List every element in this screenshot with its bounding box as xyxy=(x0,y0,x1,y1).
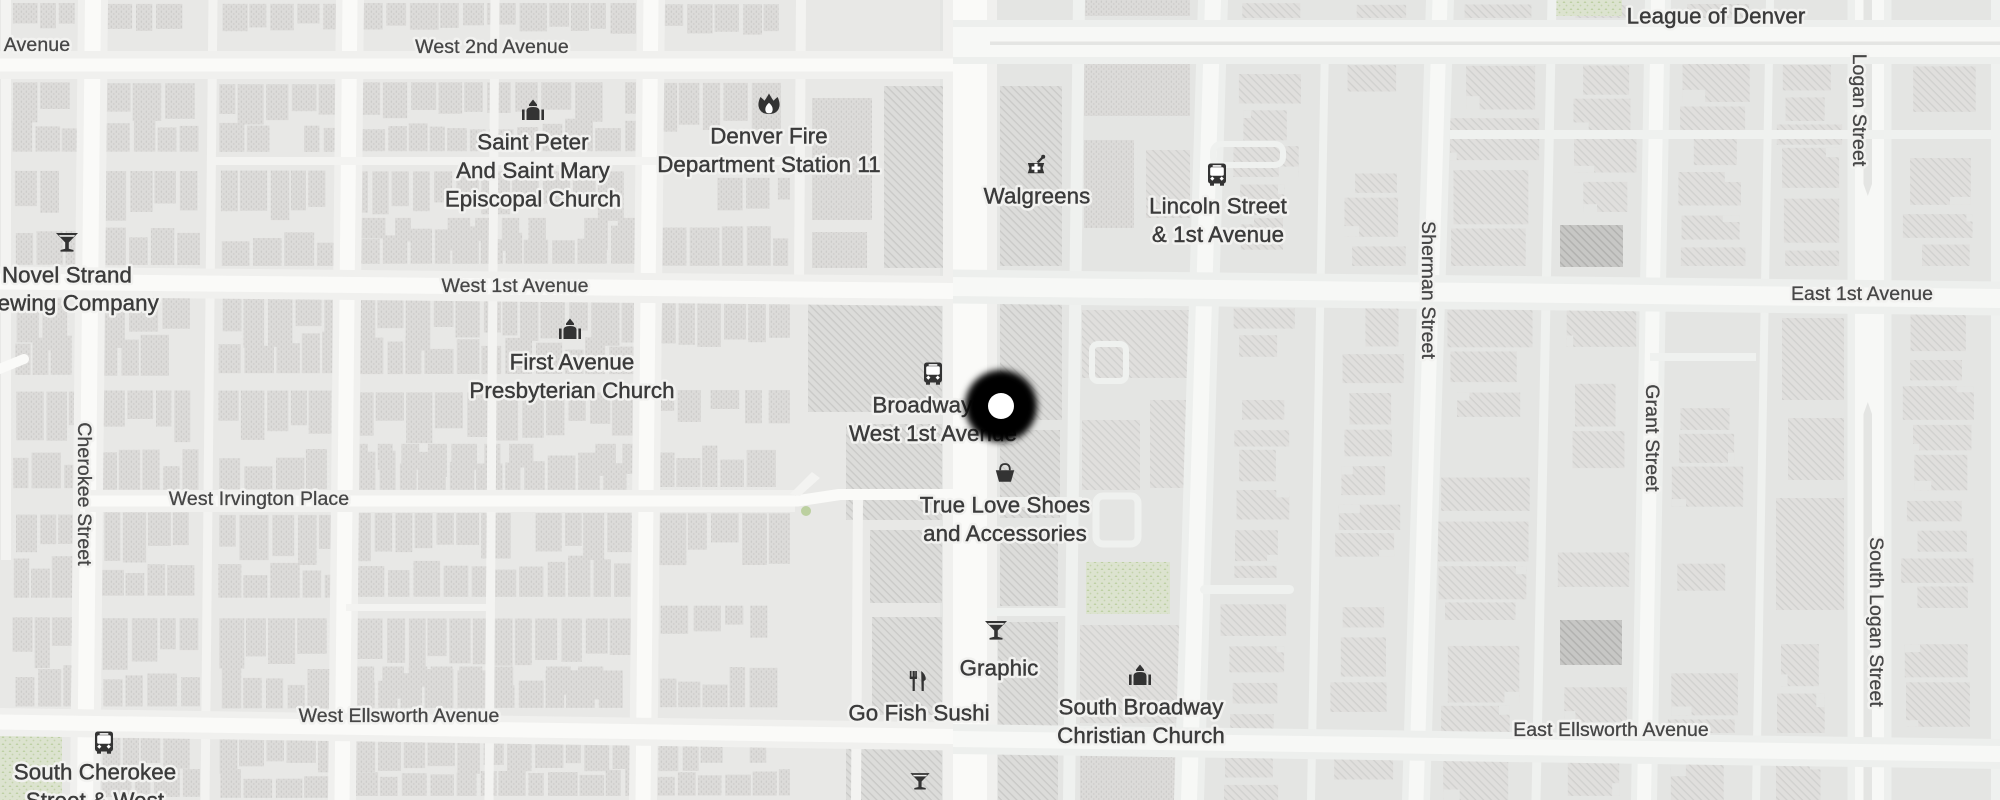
svg-text:West Irvington Place: West Irvington Place xyxy=(169,488,349,510)
svg-text:Saint Peter: Saint Peter xyxy=(477,130,589,155)
svg-text:Christian Church: Christian Church xyxy=(1057,723,1225,748)
svg-text:Episcopal Church: Episcopal Church xyxy=(445,187,621,212)
svg-text:Walgreens: Walgreens xyxy=(984,184,1091,209)
svg-text:West 2nd Avenue: West 2nd Avenue xyxy=(415,36,569,58)
svg-text:Go Fish Sushi: Go Fish Sushi xyxy=(848,701,989,726)
svg-text:Denver Fire: Denver Fire xyxy=(710,124,828,149)
svg-text:League of Denver: League of Denver xyxy=(1627,4,1806,29)
svg-text:Sherman Street: Sherman Street xyxy=(1417,221,1439,359)
svg-text:Presbyterian Church: Presbyterian Church xyxy=(469,378,674,403)
svg-text:West 1st Avenue: West 1st Avenue xyxy=(441,275,588,297)
svg-text:Department Station 11: Department Station 11 xyxy=(657,152,881,177)
svg-text:Grant Street: Grant Street xyxy=(1641,384,1663,492)
svg-text:East 1st Avenue: East 1st Avenue xyxy=(1791,283,1933,305)
svg-text:Novel Strand: Novel Strand xyxy=(2,263,132,288)
svg-text:East Ellsworth Avenue: East Ellsworth Avenue xyxy=(1513,719,1709,741)
svg-text:South Logan Street: South Logan Street xyxy=(1865,537,1887,707)
svg-text:West Ellsworth Avenue: West Ellsworth Avenue xyxy=(299,705,500,727)
svg-text:True Love Shoes: True Love Shoes xyxy=(920,493,1090,518)
svg-text:And Saint Mary: And Saint Mary xyxy=(456,158,611,183)
svg-text:& 1st Avenue: & 1st Avenue xyxy=(1152,222,1284,247)
svg-text:Brewing Company: Brewing Company xyxy=(0,291,160,316)
svg-text:Logan Street: Logan Street xyxy=(1848,54,1870,167)
svg-text:Avenue: Avenue xyxy=(4,34,70,56)
svg-text:Lincoln Street: Lincoln Street xyxy=(1149,194,1287,219)
svg-text:First Avenue: First Avenue xyxy=(510,350,635,375)
svg-text:South Broadway: South Broadway xyxy=(1058,695,1224,720)
svg-text:South Cherokee: South Cherokee xyxy=(14,760,177,785)
svg-text:Street & West: Street & West xyxy=(26,788,165,800)
svg-text:and Accessories: and Accessories xyxy=(923,521,1087,546)
svg-text:Cherokee Street: Cherokee Street xyxy=(73,422,95,566)
svg-text:Graphic: Graphic xyxy=(960,656,1039,681)
